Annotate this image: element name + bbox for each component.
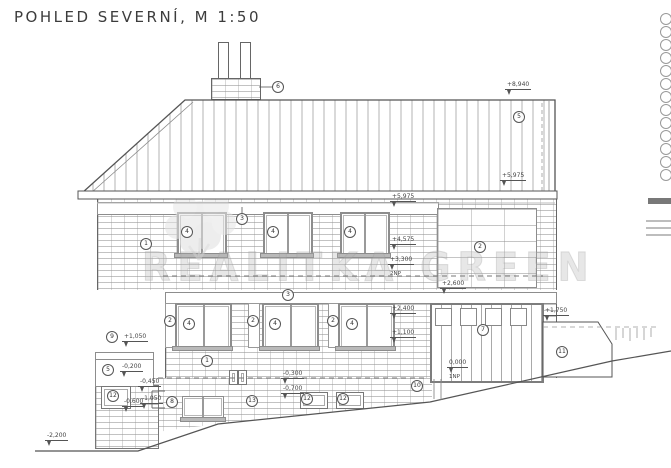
legend-item-circle	[660, 26, 671, 38]
callout-left-wall-face: 5	[102, 364, 114, 376]
elevation-left-wall-top: +1,050	[122, 334, 148, 347]
watermark-text: REALITKA GREEN	[142, 245, 596, 290]
elevation-arrow-icon	[502, 181, 506, 186]
chimney-pipe	[240, 42, 251, 80]
callout-band-lower: 3	[282, 289, 294, 301]
legend-heading	[648, 198, 671, 204]
callout-slope: 10	[411, 380, 423, 392]
elevation-arrow-icon	[122, 372, 126, 377]
elevation-ground-left: -2,200	[45, 433, 68, 446]
callout-basement-wall: 13	[246, 395, 258, 407]
elevation-drawing: POHLED SEVERNÍ, M 1:50 REA	[0, 0, 671, 468]
elevation-arrow-icon	[140, 387, 144, 392]
legend-item-circle	[660, 117, 671, 129]
garage-door-window	[510, 308, 527, 326]
elevation-zero: 0,0001NP	[447, 360, 468, 380]
elevation-arrow-icon	[442, 289, 446, 294]
basement-window	[182, 396, 224, 418]
legend-item-circle	[660, 65, 671, 77]
callout-pilaster: 2	[164, 315, 176, 327]
callout-left-wall-vent: 12	[107, 390, 119, 402]
callout-pilaster: 2	[247, 315, 259, 327]
elevation-arrow-icon	[507, 90, 511, 95]
legend-item-circle	[660, 143, 671, 155]
callout-left-wall-cap: 9	[106, 331, 118, 343]
callout-window: 4	[346, 318, 358, 330]
callout-cellar-window: 12	[301, 393, 313, 405]
legend-item-circle	[660, 78, 671, 90]
elevation-arrow-icon	[283, 394, 287, 399]
elevation-arrow-icon	[283, 379, 287, 384]
garage-door-window	[435, 308, 452, 326]
elevation-arrow-icon	[124, 407, 128, 412]
callout-wall-lower: 1	[201, 355, 213, 367]
wall-vent	[229, 370, 238, 385]
callout-wall-upper: 1	[140, 238, 152, 250]
elevation-arrow-icon	[47, 441, 51, 446]
elevation-mark: +5,975	[390, 194, 416, 207]
callout-window: 4	[269, 318, 281, 330]
elevation-arrow-icon	[142, 404, 146, 409]
window-sill	[180, 417, 226, 422]
chimney-body	[211, 78, 261, 100]
callout-window: 4	[267, 226, 279, 238]
window-mullion	[290, 305, 292, 348]
elevation-arrow-icon	[392, 314, 396, 319]
callout-band-upper: 3	[236, 213, 248, 225]
elevation-retaining-wall: +1,750	[543, 308, 569, 321]
elevation-garage-head: +2,600	[440, 281, 466, 294]
roof	[82, 100, 555, 193]
elevation-arrow-icon	[124, 342, 128, 347]
window-mullion	[202, 397, 204, 417]
elevation-base-line: -0,300	[281, 371, 304, 384]
callout-window: 4	[344, 226, 356, 238]
elevation-window-head: +2,400	[390, 306, 416, 319]
elevation-eaves: +5,975	[500, 173, 526, 186]
legend-item-circle	[660, 52, 671, 64]
callout-chimney: 6	[272, 81, 284, 93]
legend-text-line	[646, 227, 671, 229]
elevation-arrow-icon	[392, 245, 396, 250]
legend-item-circle	[660, 39, 671, 51]
garage-door-window	[460, 308, 477, 326]
window-sill	[172, 346, 233, 351]
callout-basement-window: 8	[166, 396, 178, 408]
window-sill	[335, 346, 396, 351]
elevation-step-bottom: -1,050	[140, 396, 163, 409]
chimney-pipe	[218, 42, 229, 80]
elevation-arrow-icon	[392, 338, 396, 343]
callout-pilaster: 2	[327, 315, 339, 327]
window-mullion	[203, 305, 205, 348]
legend-text-line	[646, 234, 671, 236]
window-mullion	[366, 305, 368, 348]
wall-vent	[238, 370, 247, 385]
callout-cellar-window: 12	[337, 393, 349, 405]
elevation-mark: +4,575	[390, 237, 416, 250]
legend-item-circle	[660, 156, 671, 168]
garage-door-window	[485, 308, 502, 326]
legend-item-circle	[660, 13, 671, 25]
callout-garage-door: 7	[477, 324, 489, 336]
callout-retaining-wall: 11	[556, 346, 568, 358]
window-sill	[259, 346, 320, 351]
elevation-ridge: +8,940	[505, 82, 531, 95]
callout-window: 4	[183, 318, 195, 330]
grass-ticks	[616, 328, 651, 341]
legend-text-line	[646, 220, 671, 222]
callout-window: 4	[181, 226, 193, 238]
legend-item-circle	[660, 104, 671, 116]
elevation-floor2: +3,3002NP	[388, 257, 414, 277]
elevation-arrow-icon	[392, 202, 396, 207]
callout-roof: 5	[513, 111, 525, 123]
callout-block-panel: 2	[474, 241, 486, 253]
roof-hip-line	[91, 102, 193, 193]
elevation-window-sill: +1,100	[390, 330, 416, 343]
drawing-title: POHLED SEVERNÍ, M 1:50	[14, 8, 261, 26]
legend-item-circle	[660, 91, 671, 103]
elevation-left-wall-mid: -0,200	[120, 364, 143, 377]
elevation-step-top: -0,450	[138, 379, 161, 392]
elevation-arrow-icon	[545, 316, 549, 321]
legend-item-circle	[660, 130, 671, 142]
legend-item-circle	[660, 169, 671, 181]
